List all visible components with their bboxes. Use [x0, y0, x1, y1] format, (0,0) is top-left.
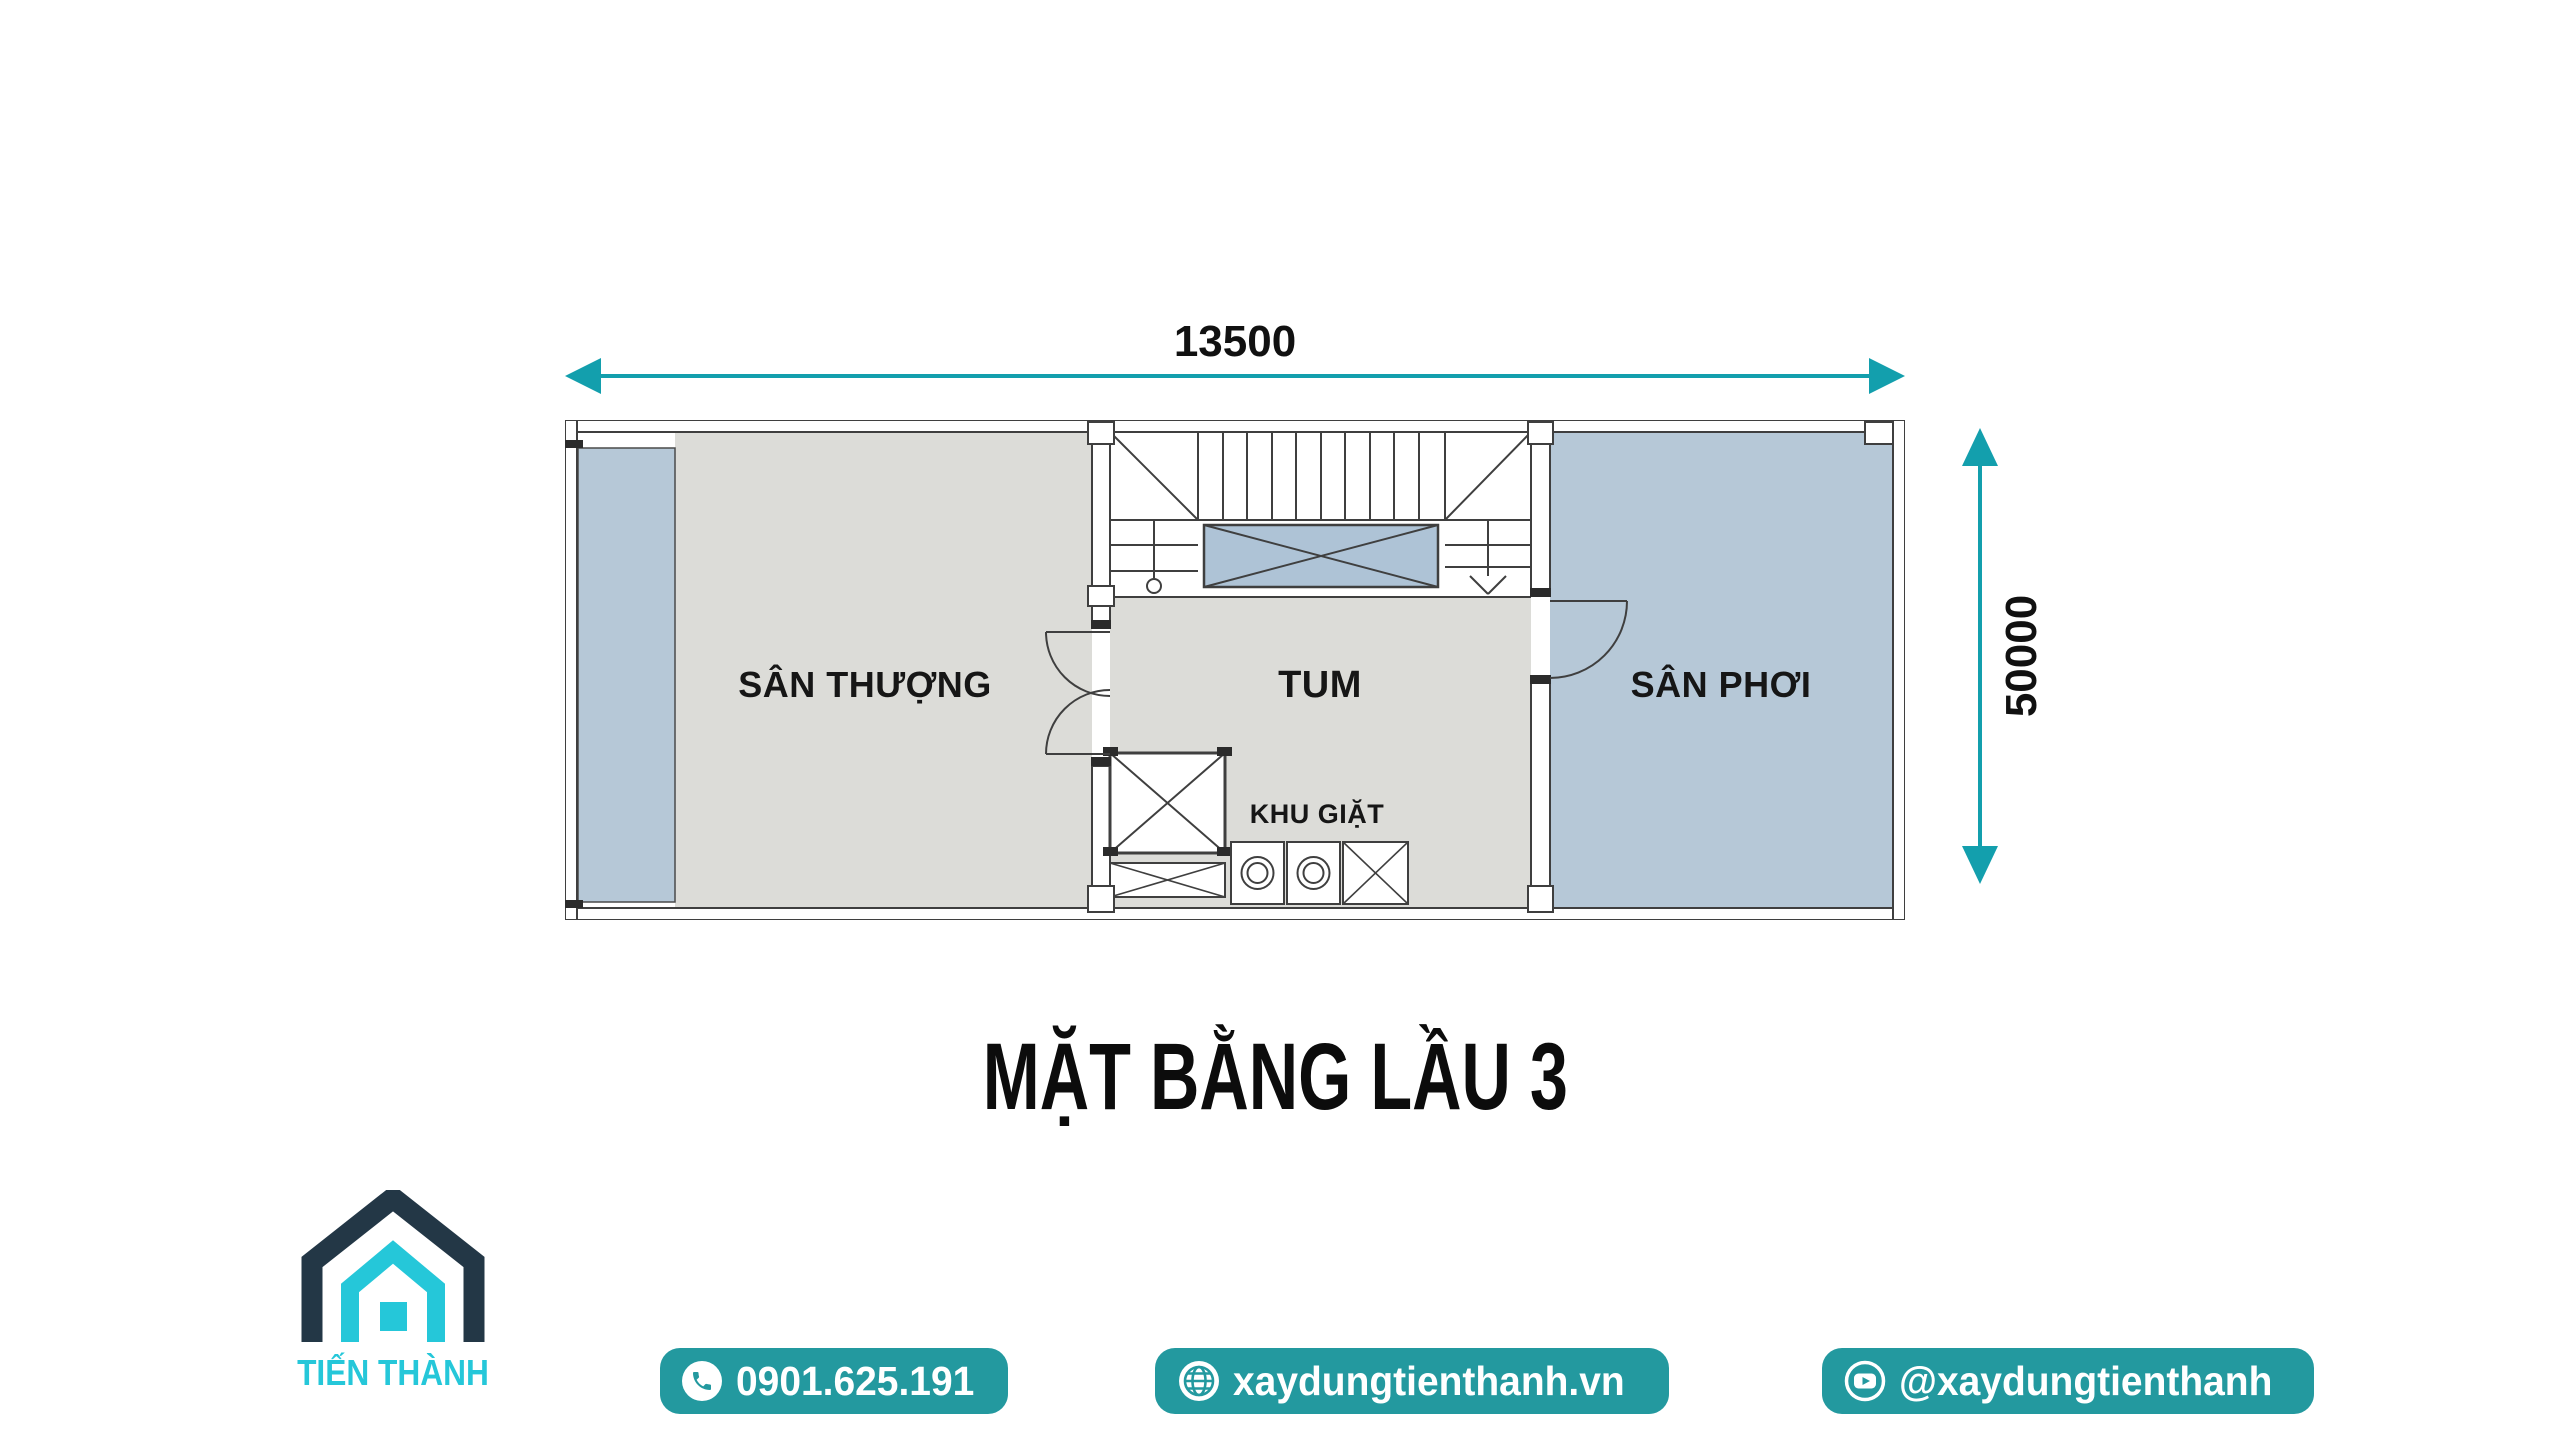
wall-stair-right-lower	[1531, 683, 1550, 908]
floor-plan: SÂN THƯỢNG TUM SÂN PHƠI KHU GIẶT	[565, 420, 1905, 920]
globe-icon	[1178, 1360, 1220, 1402]
phone-contact-button[interactable]: 0901.625.191	[660, 1348, 1008, 1414]
attic-label: TUM	[1278, 664, 1362, 706]
wall-top	[565, 420, 1905, 432]
stair-winder-right	[1445, 432, 1531, 520]
wall-stair-right-upper	[1531, 432, 1550, 590]
dimension-arrow-vertical	[1962, 428, 1998, 884]
stair-handrail-post	[1147, 579, 1161, 593]
wall-right	[1893, 420, 1905, 920]
dimension-height: 50000	[1942, 420, 2072, 920]
terrace-planter-strip	[578, 448, 675, 902]
drying-yard-label: SÂN PHƠI	[1631, 663, 1812, 705]
wall-bottom	[565, 908, 1905, 920]
youtube-icon	[1844, 1360, 1886, 1402]
company-logo-icon	[288, 1190, 498, 1346]
stair-void	[1204, 525, 1438, 587]
phone-number: 0901.625.191	[736, 1358, 974, 1405]
dimension-width: 13500	[555, 312, 1915, 396]
logo-window	[380, 1302, 407, 1331]
washing-machine-2	[1287, 842, 1340, 904]
washing-machine-1	[1231, 842, 1284, 904]
plan-title-wrap: MẶT BẰNG LẦU 3	[930, 1022, 1620, 1132]
terrace-label: SÂN THƯỢNG	[738, 663, 992, 705]
wall-left	[565, 420, 577, 920]
logo-name: TIẾN THÀNH	[283, 1352, 503, 1394]
youtube-handle: @xaydungtienthanh	[1899, 1358, 2272, 1405]
phone-icon	[681, 1360, 723, 1402]
dimension-height-label: 50000	[1997, 595, 2046, 717]
plan-title: MẶT BẰNG LẦU 3	[982, 1030, 1567, 1125]
laundry-label: KHU GIẶT	[1250, 798, 1385, 829]
page: 13500 50000	[0, 0, 2560, 1439]
website-url: xaydungtienthanh.vn	[1233, 1358, 1625, 1405]
youtube-contact-button[interactable]: @xaydungtienthanh	[1822, 1348, 2314, 1414]
dimension-width-label: 13500	[1174, 317, 1296, 366]
website-contact-button[interactable]: xaydungtienthanh.vn	[1155, 1348, 1669, 1414]
stair-winder-left	[1110, 432, 1198, 520]
